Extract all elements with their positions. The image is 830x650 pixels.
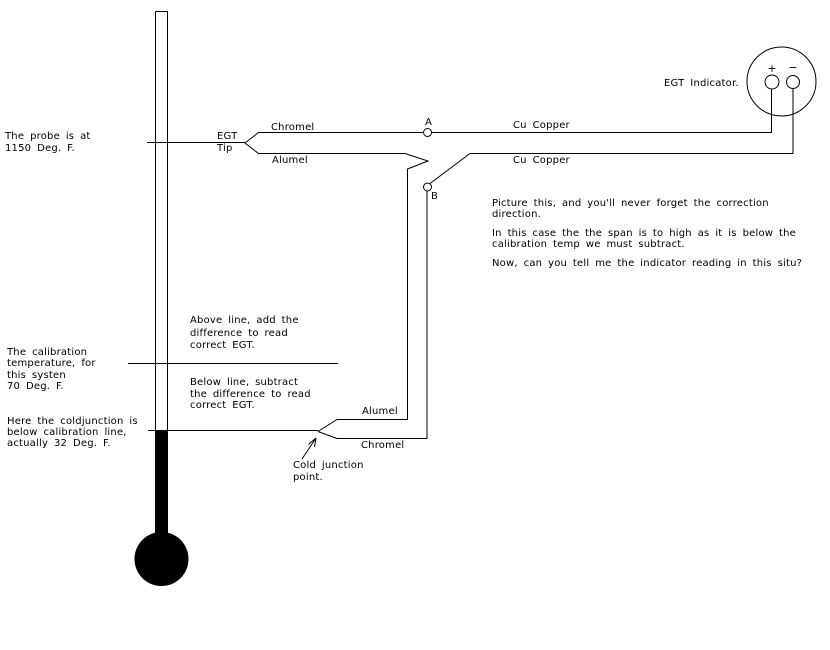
junction-a-label: A <box>425 117 432 128</box>
calibration-note: The calibration temperature, for this sy… <box>7 347 96 392</box>
cold-junction-note-line: Here the coldjunction is <box>7 416 138 427</box>
narration-line: calibration temp we must subtract. <box>492 239 796 250</box>
minus-icon: − <box>787 62 799 73</box>
below-line-note-line: correct EGT. <box>190 400 311 412</box>
junction-a-circle <box>424 129 432 137</box>
narration-paragraph-3: Now, can you tell me the indicator readi… <box>492 258 802 269</box>
probe-note-line: 1150 Deg. F. <box>5 143 91 155</box>
cold-junction-point-line: point. <box>293 472 364 484</box>
narration-line: Now, can you tell me the indicator readi… <box>492 258 802 269</box>
cold-junction-note-line: below calibration line, <box>7 427 138 438</box>
thermometer-bulb <box>135 532 189 586</box>
indicator-dial-circle <box>747 47 816 116</box>
above-line-note: Above line, add the difference to read c… <box>190 315 299 353</box>
egt-tip-label-line2: Tip <box>217 143 233 154</box>
minus-terminal-circle <box>787 76 800 89</box>
calibration-note-line: temperature, for <box>7 358 96 369</box>
cu-copper-mid-label: Cu Copper <box>513 155 570 166</box>
narration-paragraph-1: Picture this, and you'll never forget th… <box>492 198 769 220</box>
below-line-note: Below line, subtract the difference to r… <box>190 377 311 412</box>
cold-junction-note-line: actually 32 Deg. F. <box>7 438 138 449</box>
plus-icon: + <box>766 63 778 74</box>
chromel-bottom-label: Chromel <box>361 440 404 451</box>
cu-copper-top-label: Cu Copper <box>513 120 570 131</box>
cold-junction-point-label: Cold junction point. <box>293 460 364 483</box>
above-line-note-line: difference to read <box>190 328 299 341</box>
calibration-note-line: 70 Deg. F. <box>7 381 96 392</box>
probe-note-line: The probe is at <box>5 131 91 143</box>
junction-b-label: B <box>431 191 438 202</box>
probe-note: The probe is at 1150 Deg. F. <box>5 131 91 155</box>
narration-line: direction. <box>492 209 769 220</box>
narration-line: In this case the the span is to high as … <box>492 228 796 239</box>
diagram-linework <box>0 0 830 650</box>
narration-line: Picture this, and you'll never forget th… <box>492 198 769 209</box>
paint-canvas: The probe is at 1150 Deg. F. EGT Tip Chr… <box>0 0 830 650</box>
above-line-note-line: correct EGT. <box>190 340 299 353</box>
below-line-note-line: the difference to read <box>190 389 311 401</box>
cold-junction-arrow <box>302 438 316 459</box>
plus-terminal-circle <box>765 75 779 89</box>
alumel-bottom-label: Alumel <box>362 406 398 417</box>
copper-wire-top <box>428 89 772 133</box>
narration-paragraph-2: In this case the the span is to high as … <box>492 228 796 250</box>
chromel-wire-top <box>245 133 428 144</box>
egt-indicator-label: EGT Indicator. <box>664 78 739 89</box>
below-line-note-line: Below line, subtract <box>190 377 311 389</box>
chromel-wire-bottom <box>318 191 427 439</box>
calibration-note-line: this systen <box>7 370 96 381</box>
above-line-note-line: Above line, add the <box>190 315 299 328</box>
mercury-column <box>156 431 168 543</box>
egt-tip-label-line1: EGT <box>217 131 237 142</box>
junction-b-circle <box>424 183 432 191</box>
cold-junction-point-line: Cold junction <box>293 460 364 472</box>
copper-wire-mid <box>430 89 793 184</box>
alumel-top-label: Alumel <box>272 155 308 166</box>
chromel-top-label: Chromel <box>271 122 314 133</box>
cold-junction-note: Here the coldjunction is below calibrati… <box>7 416 138 449</box>
calibration-note-line: The calibration <box>7 347 96 358</box>
